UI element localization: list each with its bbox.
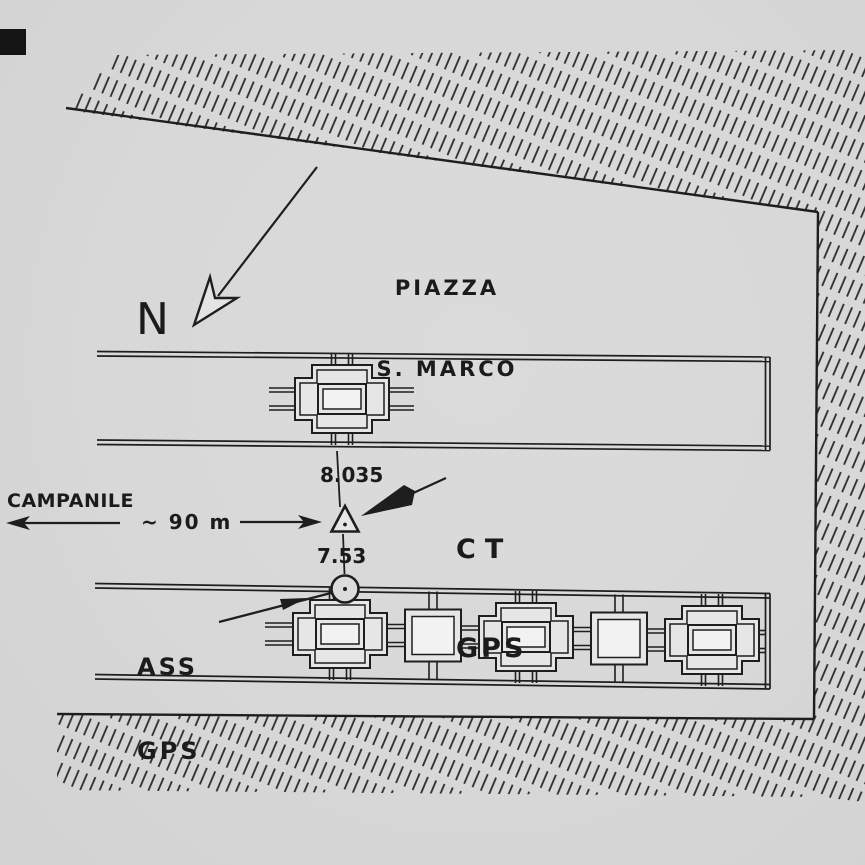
ass-marker-dot bbox=[343, 587, 347, 591]
ass-gps-label: ASS GPS bbox=[137, 597, 201, 821]
hatch-border-top bbox=[67, 50, 865, 219]
ct-marker-dot bbox=[343, 523, 347, 527]
campanile-arrow bbox=[6, 516, 120, 530]
ct-gps-label: CT GPS bbox=[456, 467, 526, 731]
ass-station-marker bbox=[332, 576, 359, 603]
north-arrow bbox=[194, 167, 317, 325]
ass-gps-arrow-head bbox=[280, 598, 307, 610]
ct-gps-arrow-head bbox=[361, 485, 415, 516]
ass-gps-label-line2: GPS bbox=[137, 737, 201, 765]
elevation-ct-label: 8.035 bbox=[320, 463, 383, 487]
piazza-label-line2: S. MARCO bbox=[337, 356, 557, 383]
survey-sketch: PIAZZA S. MARCO N CAMPANILE ~ 90 m 8.035… bbox=[0, 0, 865, 865]
ct-gps-label-line2: GPS bbox=[456, 632, 526, 665]
piazza-label: PIAZZA S. MARCO bbox=[337, 221, 557, 437]
north-arrow-head bbox=[194, 277, 237, 325]
north-label: N bbox=[136, 294, 169, 345]
distance-arrow bbox=[240, 515, 322, 529]
elevation-ass-label: 7.53 bbox=[317, 544, 366, 568]
hatch-border-right bbox=[814, 213, 865, 802]
scan-artifact bbox=[0, 29, 26, 55]
ct-station-marker bbox=[332, 506, 359, 532]
campanile-label: CAMPANILE bbox=[7, 490, 134, 512]
ass-gps-label-line1: ASS bbox=[137, 653, 201, 681]
distance-label: ~ 90 m bbox=[141, 510, 232, 534]
ct-gps-label-line1: CT bbox=[456, 533, 526, 566]
piazza-label-line1: PIAZZA bbox=[337, 275, 557, 302]
